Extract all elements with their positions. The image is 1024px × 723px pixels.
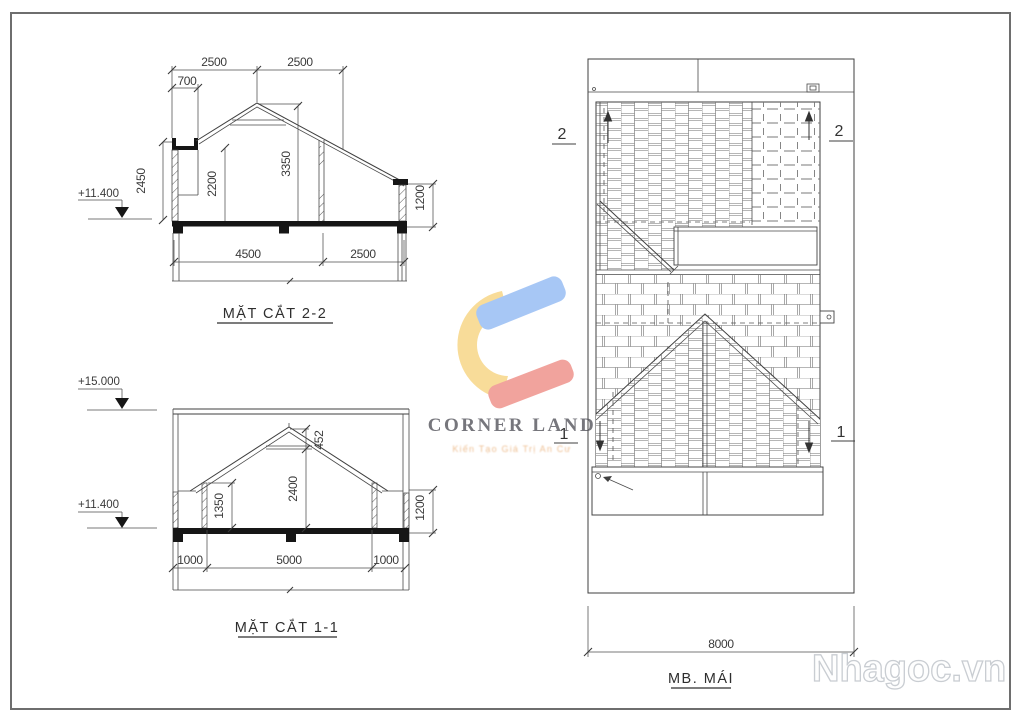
small-circle (593, 88, 596, 91)
right-wall (404, 493, 409, 528)
section-1-1-dimensions: +15.000 +11.400 1350 452 2400 1200 1000 … (78, 376, 437, 572)
dim-span-main: 4500 (235, 247, 261, 261)
drawing-canvas: 2500 2500 700 2450 +11.400 2200 3350 120… (0, 0, 1024, 723)
roof-detail-box (807, 84, 819, 92)
dim-span-right: 2500 (350, 247, 376, 261)
section-1-1-title: MẶT CẮT 1-1 (235, 618, 340, 636)
beam (173, 227, 183, 234)
interior-wall-hatch (319, 146, 324, 166)
beam (173, 534, 183, 542)
interior-wall-right (372, 483, 377, 528)
roof-plan-title: MB. MÁI (668, 670, 734, 687)
level-floor-label: +11.400 (78, 499, 119, 511)
section-2-2-dimensions: 2500 2500 700 2450 +11.400 2200 3350 120… (78, 55, 437, 266)
dim-top-right: 2500 (287, 55, 313, 69)
dim-attic-height: 2400 (286, 476, 300, 502)
collar-tie (230, 120, 286, 125)
interior-wall-hatch (319, 190, 324, 221)
section-marker-2-left: 2 (558, 126, 567, 143)
dim-eave: 700 (177, 74, 197, 88)
dim-right-wall: 1200 (413, 495, 427, 521)
floor-slab (172, 221, 407, 227)
left-wall (172, 150, 178, 221)
dim-roof-width: 8000 (708, 637, 734, 651)
floor-slab (173, 528, 409, 534)
roof-detail-box-inner (810, 86, 816, 90)
drawing-sheet: 2500 2500 700 2450 +11.400 2200 3350 120… (0, 0, 1024, 723)
site-watermark: Nhagoc.vn (812, 648, 1006, 690)
eave-band (592, 467, 823, 515)
right-wall (399, 185, 406, 221)
dim-top-left: 2500 (201, 55, 227, 69)
section-2-2-title: MẶT CẮT 2-2 (223, 304, 328, 322)
corner-land-logo: CORNER LAND Kiến Tạo Giá Trị An Cư (428, 274, 596, 454)
level-triangle (115, 517, 129, 528)
roof-outer-line (196, 103, 407, 184)
logo-title: CORNER LAND (428, 415, 596, 436)
collar-tie (266, 446, 312, 449)
dim-span-left: 1000 (177, 553, 203, 567)
roof-plan-drawing: 2 2 1 1 8000 MB. MÁI (552, 59, 858, 688)
sheet-border (11, 13, 1010, 709)
logo-red-shape (486, 357, 577, 411)
roof-flat-area (674, 227, 817, 265)
dim-span-mid: 5000 (276, 553, 302, 567)
section-marker-1-right: 1 (837, 424, 846, 441)
left-wall (173, 492, 178, 528)
beam (279, 227, 289, 234)
gutter-left (172, 138, 198, 150)
right-wall-cap (393, 179, 408, 185)
dim-wall-height: 1350 (212, 493, 226, 519)
logo-blue-shape (473, 274, 568, 333)
beam (399, 534, 409, 542)
beam (397, 227, 407, 234)
dim-right-wall: 1200 (413, 185, 427, 211)
level-label: +11.400 (78, 188, 119, 200)
logo-tagline: Kiến Tạo Giá Trị An Cư (452, 444, 571, 454)
level-triangle (115, 207, 129, 218)
dim-span-right: 1000 (373, 553, 399, 567)
roof-inner-line (199, 107, 404, 186)
section-2-2-drawing: 2500 2500 700 2450 +11.400 2200 3350 120… (78, 55, 437, 323)
level-triangle (115, 398, 129, 409)
interior-wall-left (202, 483, 207, 528)
dim-ridge-offset: 452 (312, 430, 326, 450)
dim-ridge-height: 3350 (279, 151, 293, 177)
section-marker-2-right: 2 (835, 123, 844, 140)
dim-parapet-height: 2450 (134, 168, 148, 194)
section-1-1-drawing: +15.000 +11.400 1350 452 2400 1200 1000 … (78, 376, 437, 637)
beam (286, 534, 296, 542)
level-top-label: +15.000 (78, 376, 120, 388)
dim-ceiling-left: 2200 (205, 171, 219, 197)
